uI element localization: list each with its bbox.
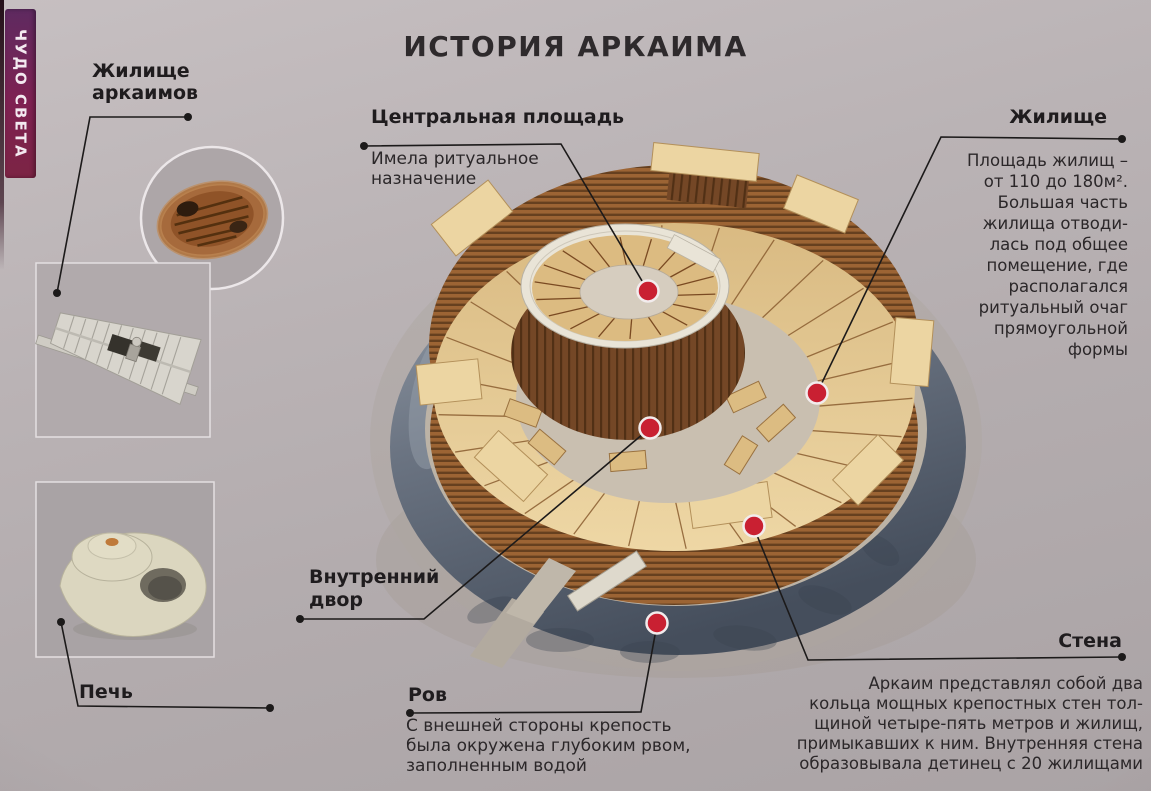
marker-moat — [647, 613, 668, 634]
marker-dwelling — [807, 383, 828, 404]
arkaim-model — [370, 143, 982, 678]
marker-wall — [744, 516, 765, 537]
marker-central-square — [638, 281, 659, 302]
marker-inner-yard — [640, 418, 661, 439]
central-plaza — [580, 265, 678, 319]
arkaim-diagram-art — [0, 0, 1151, 791]
book-page: ЧУДО СВЕТА ИСТОРИЯ АРКАИМА Жилище аркаим… — [0, 0, 1151, 791]
dwelling-image — [32, 263, 213, 437]
